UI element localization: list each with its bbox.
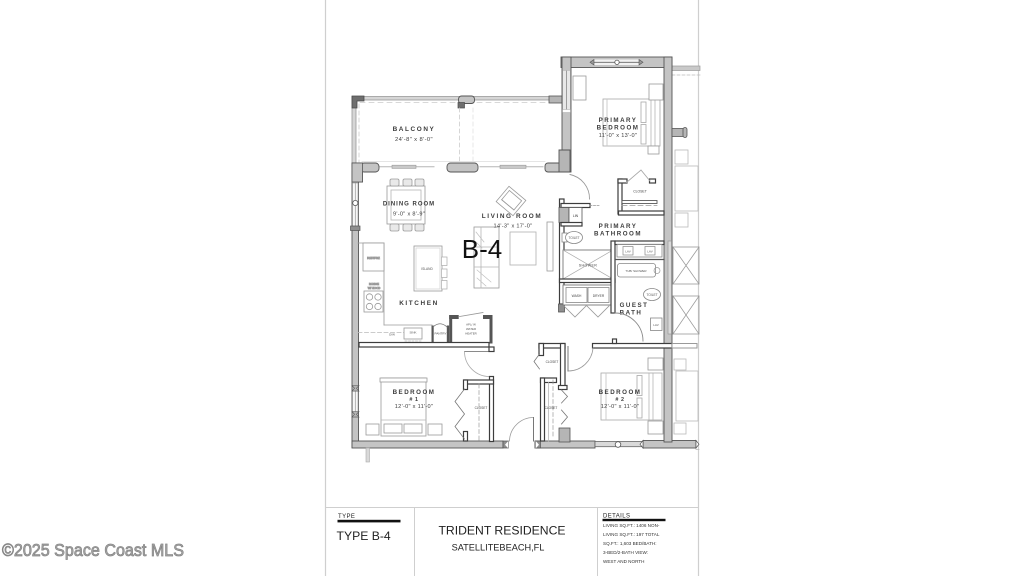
svg-text:TYPE: TYPE	[338, 514, 355, 520]
svg-text:# 1: # 1	[409, 397, 418, 403]
svg-text:CLOSET: CLOSET	[475, 406, 488, 410]
svg-text:LAV: LAV	[653, 323, 658, 327]
svg-text:DETAILS: DETAILS	[603, 514, 630, 520]
svg-text:PRIMARY: PRIMARY	[599, 223, 638, 230]
svg-text:PRIMARY: PRIMARY	[599, 117, 638, 124]
svg-text:TYPE B-4: TYPE B-4	[337, 529, 391, 543]
svg-text:12'-0" x 11'-0": 12'-0" x 11'-0"	[601, 404, 640, 410]
svg-text:LAV: LAV	[625, 250, 630, 254]
svg-text:LAV: LAV	[647, 250, 652, 254]
svg-text:DRYER: DRYER	[593, 294, 605, 298]
svg-text:WATER: WATER	[466, 327, 476, 331]
svg-text:PANTRY: PANTRY	[435, 332, 447, 336]
svg-text:SQ.FT.: 1,603 BED/BATH:: SQ.FT.: 1,603 BED/BATH:	[603, 541, 657, 546]
svg-text:BEDROOM: BEDROOM	[393, 389, 436, 396]
svg-text:HEATER: HEATER	[465, 332, 477, 336]
svg-text:BEDROOM: BEDROOM	[597, 125, 640, 132]
svg-text:SHOWER: SHOWER	[579, 264, 598, 268]
svg-text:24'-8" x 8'-0": 24'-8" x 8'-0"	[395, 137, 433, 143]
svg-text:D/W: D/W	[389, 333, 395, 337]
svg-text:TOILET: TOILET	[646, 293, 657, 297]
svg-text:3-BED/2-BATH VIEW:: 3-BED/2-BATH VIEW:	[603, 550, 648, 555]
svg-text:ISLAND: ISLAND	[421, 267, 433, 271]
svg-text:REF/FRZ: REF/FRZ	[367, 256, 380, 260]
svg-text:DINING ROOM: DINING ROOM	[383, 202, 435, 208]
svg-text:W/ HOOD: W/ HOOD	[368, 286, 381, 290]
svg-text:TOILET: TOILET	[568, 236, 579, 240]
svg-text:TUB/ SHOWER: TUB/ SHOWER	[625, 269, 647, 273]
svg-text:BATHROOM: BATHROOM	[594, 231, 642, 238]
svg-text:B-4: B-4	[462, 234, 502, 264]
svg-text:BALCONY: BALCONY	[393, 126, 436, 133]
svg-text:TRIDENT RESIDENCE: TRIDENT RESIDENCE	[438, 524, 565, 538]
svg-text:9'-0" x 8'-9": 9'-0" x 8'-9"	[393, 212, 425, 218]
svg-text:11'-0" x 13'-0": 11'-0" x 13'-0"	[599, 133, 638, 139]
svg-text:WASH: WASH	[572, 294, 582, 298]
svg-text:LIVING ROOM: LIVING ROOM	[482, 213, 543, 220]
svg-text:LIVING SQ.FT.: 197 TOTAL: LIVING SQ.FT.: 197 TOTAL	[603, 532, 660, 537]
svg-text:BEDROOM: BEDROOM	[599, 389, 642, 396]
svg-text:CLOSET: CLOSET	[545, 406, 558, 410]
svg-text:CLOSET: CLOSET	[546, 360, 559, 364]
svg-text:# 2: # 2	[615, 397, 624, 403]
svg-text:12'-0" x 11'-0": 12'-0" x 11'-0"	[395, 404, 434, 410]
svg-text:WEST AND NORTH: WEST AND NORTH	[603, 559, 644, 564]
svg-text:©2025 Space Coast MLS: ©2025 Space Coast MLS	[2, 540, 184, 560]
svg-text:LIN: LIN	[573, 214, 579, 218]
svg-text:APL/ W: APL/ W	[466, 323, 476, 327]
svg-text:GUEST: GUEST	[620, 302, 649, 309]
svg-text:14'-3" x 17'-0": 14'-3" x 17'-0"	[494, 224, 533, 230]
svg-text:SATELLITEBEACH,FL: SATELLITEBEACH,FL	[452, 543, 545, 553]
svg-text:BATH: BATH	[620, 310, 643, 317]
svg-text:LIVING SQ.FT.: 1406 NON-: LIVING SQ.FT.: 1406 NON-	[603, 523, 660, 528]
svg-text:KITCHEN: KITCHEN	[399, 300, 439, 307]
svg-text:SINK: SINK	[409, 331, 416, 335]
svg-text:CLOSET: CLOSET	[633, 190, 647, 194]
